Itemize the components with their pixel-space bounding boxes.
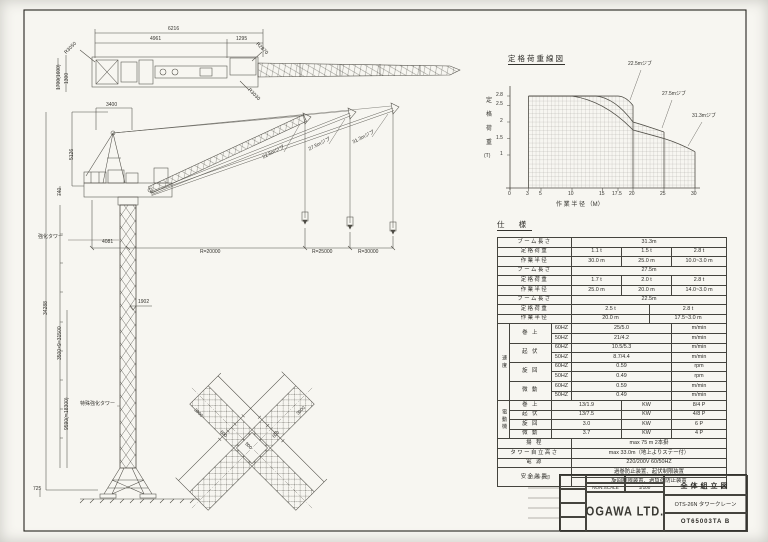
- x-tick-20: 20: [629, 192, 635, 197]
- x-tick-10: 10: [568, 192, 574, 197]
- spec-title: 仕 様: [497, 221, 532, 231]
- chart-label-jib-22: 22.5mジブ: [628, 62, 652, 67]
- company-name: OGAWA LTD.: [586, 505, 664, 519]
- y-axis-char-0: 定: [486, 98, 492, 104]
- model-number: OTS-26N タワークレーン: [663, 494, 748, 514]
- table-row: 旋 回60HZ0.59rpm: [498, 362, 727, 372]
- table-row: 揚 程max 75 m 2本掛: [498, 439, 727, 449]
- drawing-title: 全体組立図: [663, 475, 748, 496]
- table-row: 定格荷重1.1 t1.5 t2.8 t: [498, 247, 727, 257]
- y-tick-15: 1.5: [496, 136, 503, 141]
- dim-plan-left: 4961: [150, 37, 161, 42]
- drawing-number: OT65003TA B: [663, 512, 748, 532]
- table-row: 作業半径25.0 m20.0 m14.0~3.0 m: [498, 285, 727, 295]
- table-row: 微 動60HZ0.59m/min: [498, 381, 727, 391]
- table-row: 速度巻 上60HZ25/5.0m/min: [498, 324, 727, 334]
- dim-elev-r20: R=20000: [200, 250, 220, 255]
- dim-plan-side1: 1300: [65, 73, 70, 84]
- table-row: 定格荷重1.7 t2.0 t2.8 t: [498, 276, 727, 286]
- title-block: NON.SCALE 1/100 OGAWA LTD. 全体組立図 OTS-26N…: [559, 474, 747, 531]
- table-row: 微 動3.7KW4 P: [498, 429, 727, 439]
- y-axis-unit: (T): [484, 154, 490, 159]
- table-row: 起 伏60HZ10.5/5.3m/min: [498, 343, 727, 353]
- table-row: 旋 回3.0KW6 P: [498, 420, 727, 430]
- table-row: ブーム長さ31.3m: [498, 238, 727, 248]
- x-tick-17-5: 17.5: [612, 192, 622, 197]
- y-tick-1: 1: [500, 152, 503, 157]
- stamp-cell: [560, 516, 587, 532]
- x-tick-25: 25: [660, 192, 666, 197]
- dim-elev-overall: 34288: [44, 301, 49, 315]
- y-tick-25: 2.5: [496, 102, 503, 107]
- table-row: 作業半径30.0 m25.0 m10.0~3.0 m: [498, 257, 727, 267]
- dim-elev-apex: 5126: [70, 149, 75, 160]
- dim-elev-deck: 740: [58, 188, 63, 196]
- x-tick-3: 3: [526, 192, 529, 197]
- dim-elev-level: 1902: [138, 300, 149, 305]
- dim-plan-overall: 6216: [168, 27, 179, 32]
- chart-label-jib-27: 27.5mジブ: [662, 92, 686, 97]
- x-axis-label: 作 業 半 径 （M）: [556, 202, 604, 208]
- dim-plan-side2: 1700(1600): [57, 64, 62, 90]
- chart-label-jib-31: 31.3mジブ: [692, 114, 716, 119]
- dim-elev-lower: 9590(≒18300): [65, 397, 70, 430]
- drawing-sheet: 6216 4961 1295 R3050 R2870 R3030 1300 17…: [0, 0, 768, 542]
- table-row: ブーム長さ22.5m: [498, 295, 727, 305]
- y-tick-28: 2.8: [496, 93, 503, 98]
- dim-plan-right: 1295: [236, 37, 247, 42]
- dim-elev-top: 3400: [106, 103, 117, 108]
- label-reinforced-tower: 強化タワー: [38, 235, 63, 240]
- table-row: 電 源220/200V 60/50HZ: [498, 458, 727, 468]
- y-axis-char-1: 格: [486, 112, 492, 118]
- x-tick-0: 0: [508, 192, 511, 197]
- y-tick-2: 2: [500, 119, 503, 124]
- table-row: ブーム長さ27.5m: [498, 266, 727, 276]
- table-row: 定格荷重2.5 t2.8 t: [498, 305, 727, 315]
- dim-elev-r25: R=25000: [312, 250, 332, 255]
- dim-elev-upper: 3500×9=31500: [58, 326, 63, 360]
- company-logo: OGAWA LTD.: [585, 491, 665, 532]
- dim-elev-r30: R=30000: [358, 250, 378, 255]
- dim-elev-base: 725: [33, 487, 41, 492]
- table-row: 起 伏13/7.5KW4/8 P: [498, 410, 727, 420]
- table-row: タワー自立高さmax 33.0m（地上よりステー付）: [498, 449, 727, 459]
- table-row: 作業半径20.0 m17.5~3.0 m: [498, 314, 727, 324]
- chart-title: 定格荷重線図: [508, 55, 565, 65]
- table-row: 電動機巻 上13/1.9KW8/4 P: [498, 401, 727, 411]
- spec-table: ブーム長さ31.3m 定格荷重1.1 t1.5 t2.8 t 作業半径30.0 …: [497, 237, 727, 487]
- x-tick-30: 30: [691, 192, 697, 197]
- y-axis-char-2: 荷: [486, 126, 492, 132]
- y-axis-char-3: 重: [486, 140, 492, 146]
- x-tick-15: 15: [599, 192, 605, 197]
- label-special-reinforced-tower: 特殊強化タワー: [80, 402, 115, 407]
- x-tick-5: 5: [539, 192, 542, 197]
- dim-elev-front: 4081: [102, 240, 113, 245]
- sheet-note: ※リンク印: [527, 476, 550, 481]
